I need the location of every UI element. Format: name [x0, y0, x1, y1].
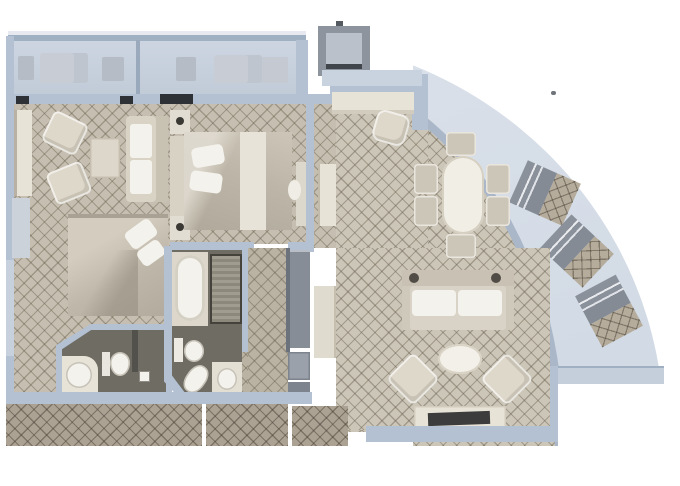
veranda-divider [136, 40, 140, 96]
lamp [176, 223, 184, 231]
bed-fold [68, 250, 138, 316]
wall-cabinet [12, 198, 30, 258]
toilet-tank [102, 352, 110, 376]
aft-veranda-left-wall [6, 36, 14, 98]
loveseat-cushion [130, 160, 152, 194]
living-bottom-wall [366, 426, 558, 442]
sofa-cushion [458, 290, 502, 316]
suite-bottom-wall [6, 392, 312, 404]
veranda-table [18, 56, 34, 80]
desk [332, 92, 414, 114]
mask-bottom [0, 446, 680, 486]
sink [217, 368, 237, 390]
dining-chair [414, 164, 438, 194]
mask-right [664, 0, 680, 486]
vanity-stool [288, 180, 301, 200]
veranda-lounger [214, 55, 262, 83]
entrance-landing [322, 70, 422, 86]
veranda-table [176, 57, 196, 81]
wall-switch [140, 372, 149, 381]
dining-table [442, 156, 484, 234]
bed-runner [240, 132, 266, 230]
ship-corridor [206, 404, 288, 446]
floor-plan [0, 0, 680, 486]
lamp [409, 273, 419, 283]
sideboard [314, 286, 336, 358]
deck-mark [551, 91, 556, 95]
wardrobe-cabinet [318, 164, 338, 226]
balcony-door [160, 94, 193, 104]
wardrobe [290, 250, 310, 348]
step-wall-horizontal [546, 366, 664, 384]
headboard [170, 136, 184, 216]
aft-veranda-right-wall [296, 40, 308, 102]
veranda-lounger [40, 53, 88, 83]
dining-chair [446, 234, 476, 258]
hallway [248, 248, 288, 396]
pillow [189, 170, 223, 194]
sink [66, 362, 92, 388]
coffee-table [438, 344, 482, 374]
dining-chair [446, 132, 476, 156]
dining-chair [486, 164, 510, 194]
wall-cabinet [14, 110, 32, 196]
ship-corridor [292, 406, 348, 448]
balcony-door [16, 96, 29, 104]
bathroom-partition [132, 330, 138, 372]
balcony-door [120, 96, 133, 104]
entrance-door [326, 64, 362, 69]
master-bedroom-right-wall [306, 94, 314, 246]
storage-box [288, 352, 310, 380]
veranda-chair [262, 57, 288, 83]
bathtub [175, 255, 205, 321]
lamp [176, 117, 184, 125]
tv-screen [428, 411, 490, 426]
veranda-table [102, 57, 124, 81]
dining-chair [414, 196, 438, 226]
entrance-mark [336, 21, 343, 26]
sofa-cushion [412, 290, 456, 316]
ship-corridor [6, 404, 202, 446]
loveseat-cushion [130, 124, 152, 158]
toilet-tank [174, 338, 183, 362]
lamp [491, 273, 501, 283]
dining-chair [486, 196, 510, 226]
shower [210, 254, 242, 324]
aft-veranda-outer-wall [8, 31, 306, 41]
toilet [184, 340, 204, 362]
side-table [90, 138, 120, 178]
